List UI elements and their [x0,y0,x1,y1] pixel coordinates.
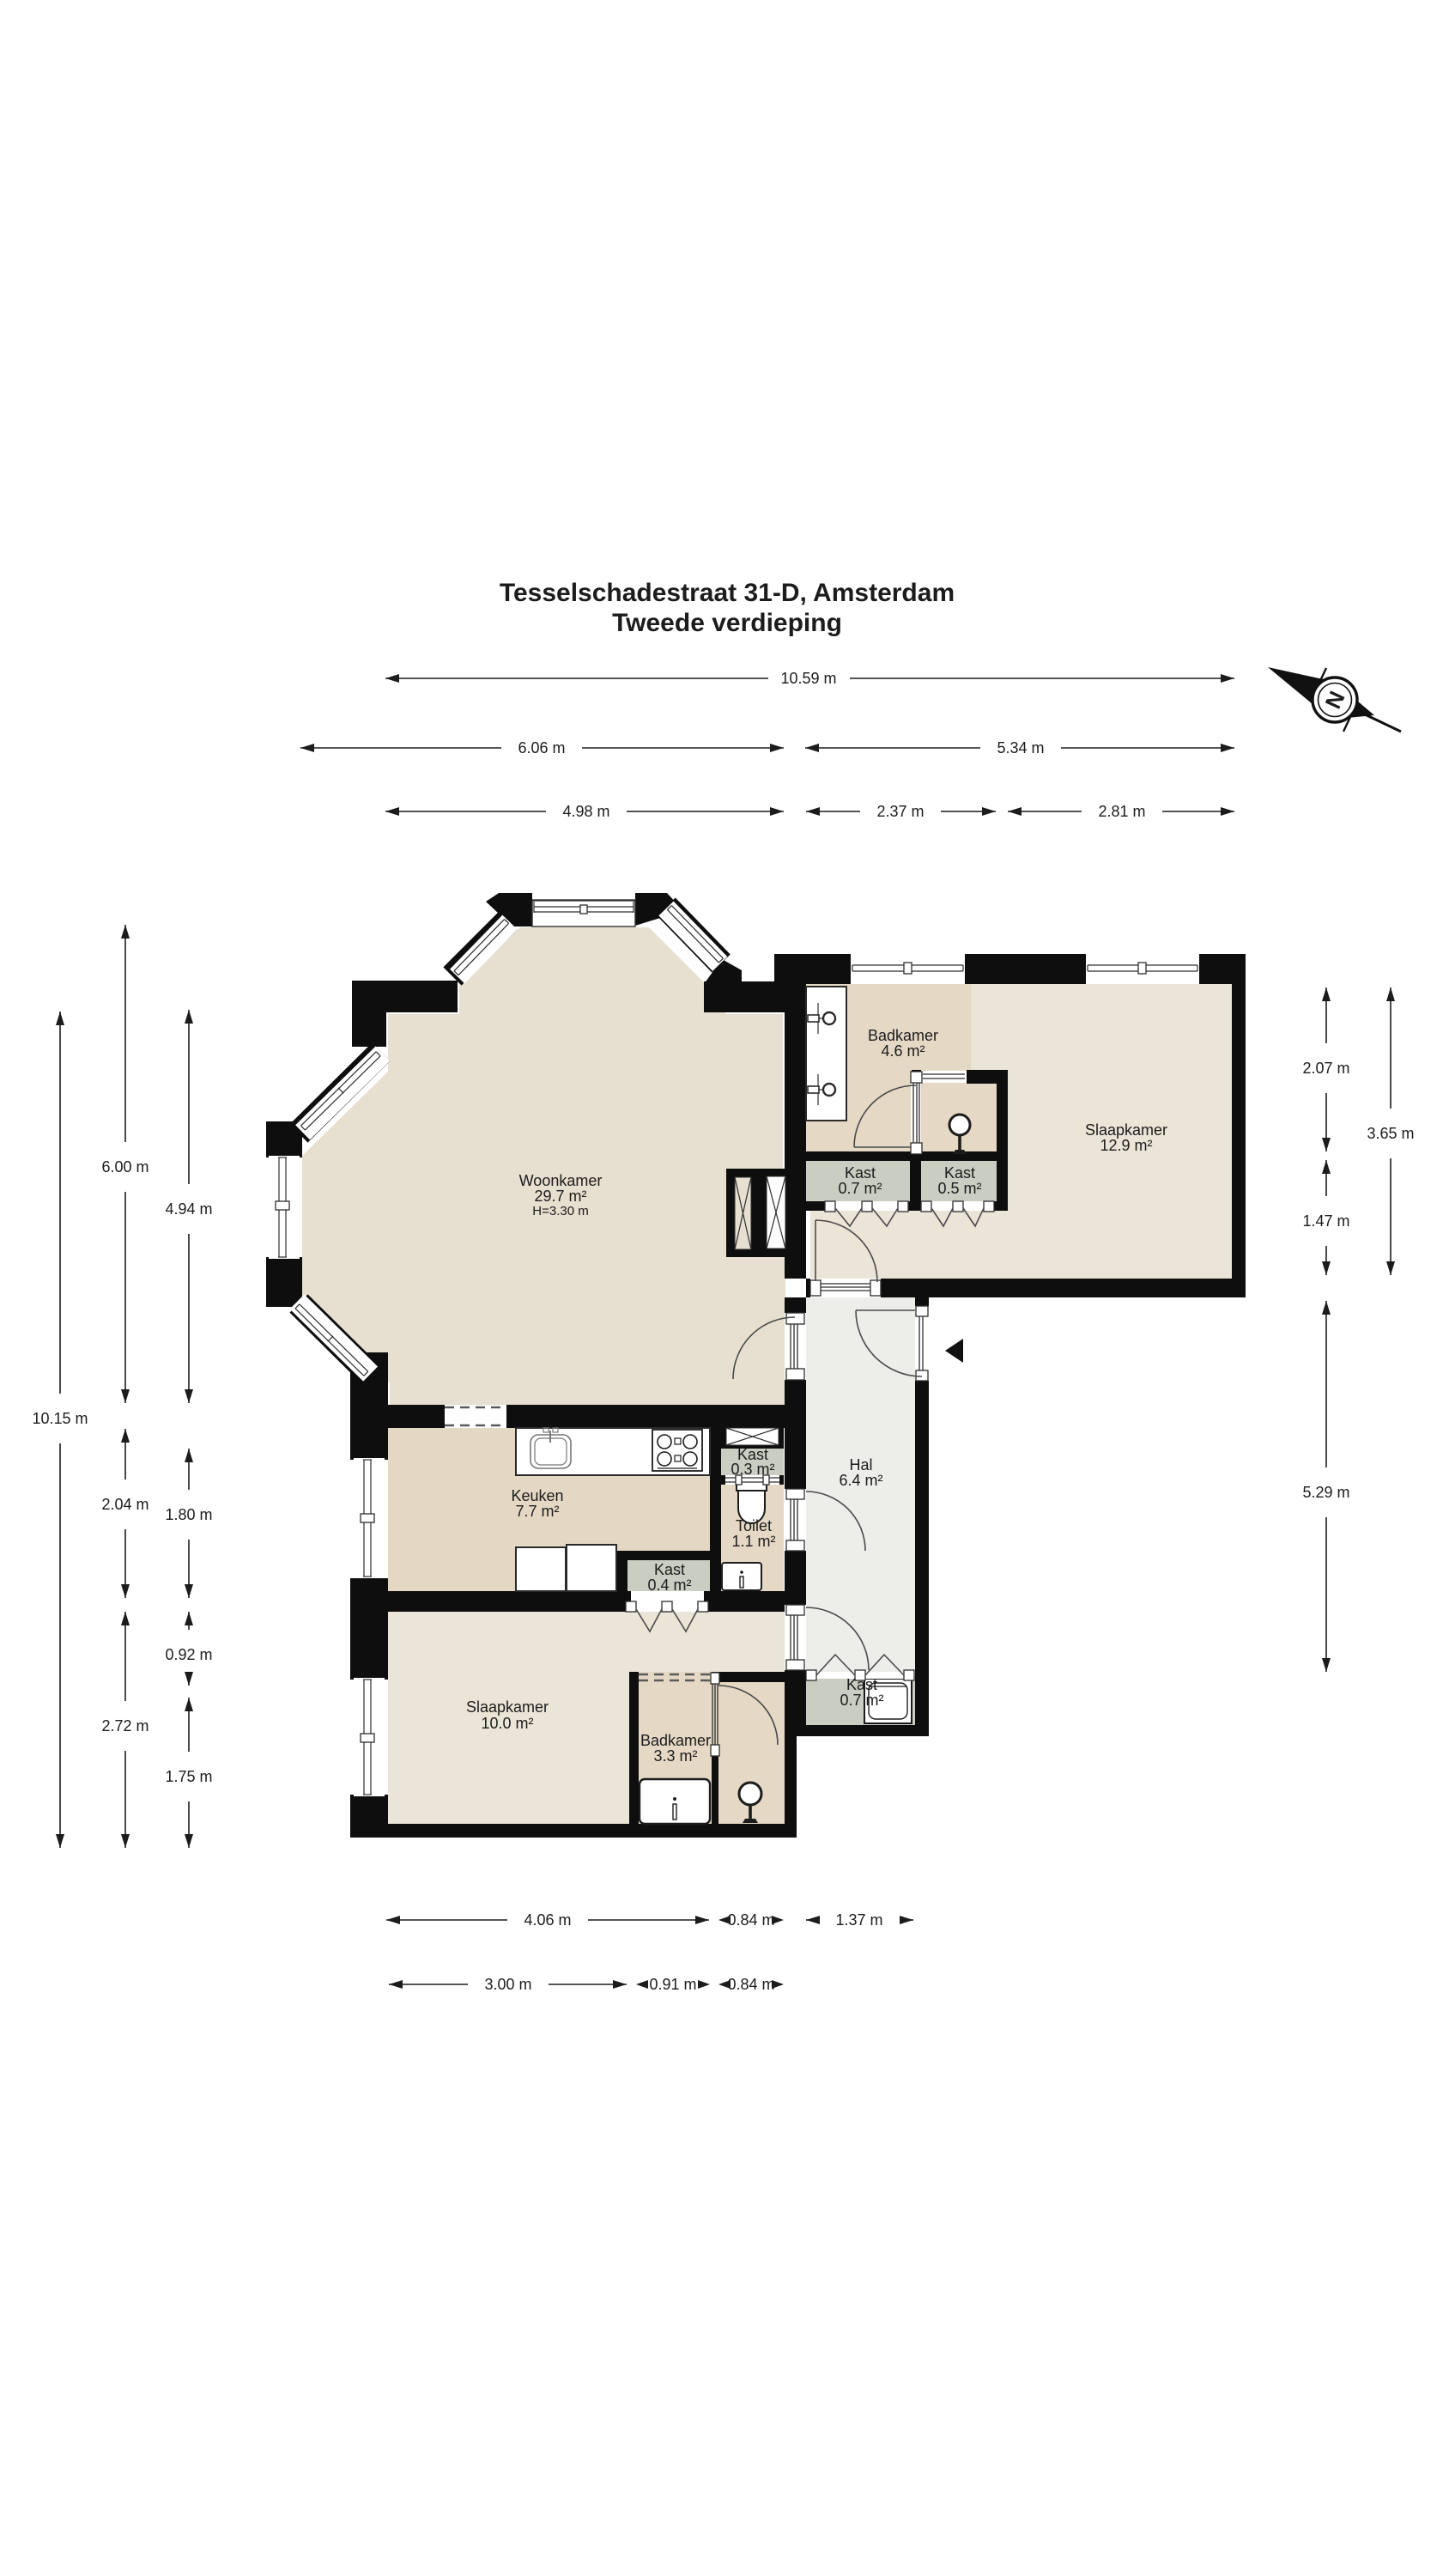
svg-text:Woonkamer: Woonkamer [519,1172,603,1189]
svg-text:1.75 m: 1.75 m [165,1768,212,1785]
svg-text:0.84 m: 0.84 m [727,1976,774,1993]
svg-text:1.1 m²: 1.1 m² [731,1533,775,1550]
svg-text:Kast: Kast [846,1676,877,1693]
svg-text:2.37 m: 2.37 m [876,803,924,820]
svg-text:6.00 m: 6.00 m [101,1158,149,1176]
svg-text:3.3 m²: 3.3 m² [653,1747,697,1765]
svg-text:4.94 m: 4.94 m [165,1200,212,1218]
svg-text:7.7 m²: 7.7 m² [515,1503,559,1520]
svg-text:3.00 m: 3.00 m [484,1976,531,1993]
svg-text:0.92 m: 0.92 m [165,1646,212,1663]
svg-text:0.84 m: 0.84 m [727,1911,774,1929]
svg-text:10.0 m²: 10.0 m² [481,1715,533,1732]
svg-text:2.04 m: 2.04 m [101,1496,149,1513]
svg-text:H=3.30 m: H=3.30 m [532,1204,588,1218]
svg-text:4.06 m: 4.06 m [524,1911,571,1929]
svg-text:0.5 m²: 0.5 m² [937,1180,981,1197]
svg-text:10.59 m: 10.59 m [780,670,836,687]
svg-text:0.3 m²: 0.3 m² [731,1461,774,1478]
svg-text:2.81 m: 2.81 m [1098,803,1145,820]
svg-text:Kast: Kast [944,1164,975,1182]
svg-text:Slaapkamer: Slaapkamer [466,1698,549,1716]
svg-text:Slaapkamer: Slaapkamer [1085,1121,1167,1139]
svg-text:12.9 m²: 12.9 m² [1100,1137,1152,1154]
svg-text:0.91 m: 0.91 m [649,1976,696,1993]
svg-text:6.06 m: 6.06 m [518,739,565,756]
svg-text:Badkamer: Badkamer [640,1732,711,1749]
svg-text:1.37 m: 1.37 m [835,1911,882,1929]
svg-text:6.4 m²: 6.4 m² [839,1472,882,1489]
svg-text:10.15 m: 10.15 m [32,1410,88,1427]
svg-text:5.29 m: 5.29 m [1302,1484,1349,1501]
svg-text:Hal: Hal [849,1456,872,1473]
svg-text:5.34 m: 5.34 m [997,739,1044,756]
svg-text:1.80 m: 1.80 m [165,1506,212,1523]
svg-text:4.98 m: 4.98 m [562,803,609,820]
svg-text:Toilet: Toilet [736,1517,772,1534]
svg-text:Kast: Kast [845,1164,876,1182]
svg-text:Tesselschadestraat 31-D, Amste: Tesselschadestraat 31-D, Amsterdam [500,579,955,607]
svg-text:0.7 m²: 0.7 m² [840,1692,883,1709]
svg-text:4.6 m²: 4.6 m² [881,1042,925,1060]
svg-text:2.07 m: 2.07 m [1302,1060,1349,1077]
svg-text:29.7 m²: 29.7 m² [534,1188,586,1205]
svg-text:Keuken: Keuken [511,1487,563,1504]
svg-text:Kast: Kast [654,1561,685,1578]
svg-text:1.47 m: 1.47 m [1302,1212,1349,1230]
svg-text:Tweede verdieping: Tweede verdieping [612,609,842,637]
svg-text:2.72 m: 2.72 m [101,1717,149,1735]
svg-text:0.4 m²: 0.4 m² [647,1577,691,1594]
svg-text:Badkamer: Badkamer [868,1027,938,1044]
svg-text:3.65 m: 3.65 m [1367,1125,1414,1142]
svg-text:0.7 m²: 0.7 m² [838,1180,882,1197]
